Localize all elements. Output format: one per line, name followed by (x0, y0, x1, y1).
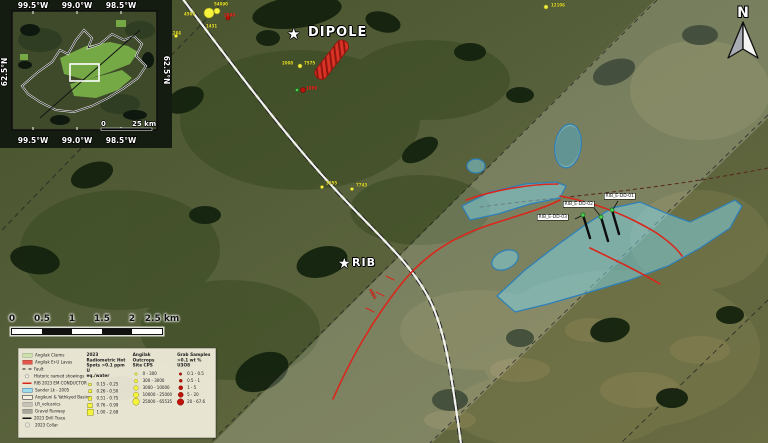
inset-lat-label-right: 62.5°N (162, 56, 171, 85)
legend-class-label: 5 - 20 (187, 393, 199, 398)
drill-hole-label: RIB_E-DD-01 (604, 193, 636, 200)
inset-lon-label: 98.5°W (106, 1, 137, 10)
patchborder-legend-icon (23, 388, 33, 393)
target-star: ★ (287, 27, 300, 42)
sample-value-label: 2008 (282, 61, 293, 66)
sample-value-label: 1889 (306, 86, 317, 91)
scale-tick: 2.5 km (145, 314, 179, 324)
legend-column-header: Angilak OutcropsSite CPS (133, 353, 173, 369)
legend-symbol-row: Angikuni & Yathkyed Basins (23, 395, 83, 400)
patch-legend-icon (23, 360, 33, 365)
circle-class-symbol (179, 372, 182, 375)
legend-symbol-column: Angilak ClaimsAngilak Er-U LavasFault★Hi… (23, 353, 83, 435)
inset-lon-label: 99.5°W (18, 1, 49, 10)
legend-class-label: 0.15 - 0.25 (97, 382, 119, 387)
scale-bar: 00.511.522.5 km (8, 314, 178, 340)
legend-symbol-label: LR_volcanics (35, 402, 61, 407)
north-arrow-left (728, 22, 743, 58)
patch-legend-icon (23, 353, 33, 358)
legend-class-label: 0.5 - 1 (187, 379, 200, 384)
drill-hole-label: RIB_E-DD-02 (563, 201, 595, 208)
sample-value-label: 2849 (224, 13, 235, 18)
legend-class-row: 0.26 - 0.50 (87, 388, 129, 395)
legend-class-row: 0.1 - 0.5 (177, 370, 212, 377)
legend-symbol-row: Angilak Claims (23, 353, 83, 358)
legend-class-row: 25000 - 65535 (133, 398, 173, 405)
legend-class-label: 0.26 - 0.50 (97, 389, 119, 394)
square-class-symbol (88, 390, 92, 394)
legend-symbol-label: Angilak Claims (35, 353, 65, 358)
target-label: RIB (352, 256, 376, 269)
legend-symbol-row: Sander Lk - 2005 (23, 388, 83, 393)
scale-tick: 1.5 (94, 314, 110, 324)
legend-radiometric-column: 2023 Radiometric HotSpots >0.1 ppm Ueq./… (87, 353, 129, 435)
legend-symbol-label: Sander Lk - 2005 (35, 388, 69, 393)
legend-class-label: 0 - 300 (143, 372, 157, 377)
legend-class-row: 3000 - 10000 (133, 384, 173, 391)
legend-class-row: 300 - 3000 (133, 377, 173, 384)
legend-class-label: 20 - 67.6 (187, 400, 205, 405)
legend-symbol-label: 2023 Collar (35, 423, 58, 428)
scale-tick: 1 (69, 314, 75, 324)
legend-symbol-row: ★Historic named showings (23, 374, 83, 379)
inset-locator-map: 99.5°W99.0°W98.5°W 99.5°W99.0°W98.5°W 62… (0, 0, 172, 148)
sample-value-label: 4884 (368, 288, 377, 300)
circle-class-symbol (179, 379, 183, 383)
inset-lon-label: 99.0°W (62, 1, 93, 10)
inset-lon-label: 99.0°W (62, 136, 93, 145)
legend-panel: Angilak ClaimsAngilak Er-U LavasFault★Hi… (18, 348, 216, 438)
legend-symbol-row: Fault (23, 367, 83, 372)
north-arrow: N (722, 2, 764, 64)
scale-tick: 0.5 (34, 314, 50, 324)
legend-class-row: 0.51 - 0.75 (87, 395, 129, 402)
north-label: N (737, 5, 749, 21)
legend-symbol-row: 2023 Drill Trace (23, 416, 83, 421)
inset-lat-label-left: 62.5°N (0, 58, 9, 87)
circle-class-symbol (134, 379, 138, 383)
legend-class-label: 1.00 - 2.68 (97, 410, 119, 415)
legend-class-label: 3000 - 10000 (143, 386, 170, 391)
legend-outcrops-column: Angilak OutcropsSite CPS0 - 300300 - 300… (133, 353, 173, 435)
legend-symbol-label: Angikuni & Yathkyed Basins (35, 395, 90, 400)
sample-value-label: 7743 (356, 183, 367, 188)
target-star: ★ (338, 257, 351, 271)
inset-scale-bar (101, 128, 152, 131)
legend-class-row: 0.5 - 1 (177, 377, 212, 384)
legend-symbol-row: Gravel Runway (23, 409, 83, 414)
legend-class-row: 20 - 67.6 (177, 398, 212, 405)
legend-symbol-row: RIB 2023 EM CONDUCTOR (23, 381, 83, 386)
scale-segment (132, 329, 162, 334)
legend-class-label: 25000 - 65535 (143, 400, 172, 405)
scale-tick: 2 (129, 314, 135, 324)
legend-symbol-row: Angilak Er-U Lavas (23, 360, 83, 365)
legend-symbol-label: Historic named showings (34, 374, 84, 379)
circle-class-symbol (133, 392, 139, 398)
scale-segment (12, 329, 42, 334)
legend-symbol-label: Fault (34, 367, 44, 372)
legend-class-label: 0.76 - 0.99 (97, 403, 119, 408)
legend-symbol-label: Gravel Runway (35, 409, 65, 414)
patch-legend-icon (23, 409, 33, 414)
legend-column-header: Grab Samples>0.1 wt % U3O8 (177, 353, 212, 369)
legend-column-header: 2023 Radiometric HotSpots >0.1 ppm Ueq./… (87, 353, 129, 379)
scale-bar-segments (11, 328, 163, 335)
map-figure: ★DIPOLE★RIBRIB_E-DD-01RIB_E-DD-02RIB_E-D… (0, 0, 768, 443)
circle-class-symbol (178, 392, 184, 398)
sample-value-label: 4505 (184, 12, 195, 17)
legend-symbol-row: LR_volcanics (23, 402, 83, 407)
legend-class-row: 0 - 300 (133, 370, 173, 377)
inset-lon-labels-top: 99.5°W99.0°W98.5°W (18, 1, 137, 10)
square-class-symbol (88, 403, 93, 408)
legend-class-row: 0.15 - 0.25 (87, 381, 129, 388)
line-legend-icon (23, 382, 32, 384)
square-class-symbol (89, 383, 92, 386)
line-legend-icon (23, 417, 32, 419)
dash-legend-icon (23, 369, 32, 370)
sample-value-label: 7575 (304, 61, 315, 66)
square-class-symbol (88, 396, 92, 400)
circle-class-symbol (177, 398, 184, 405)
legend-class-row: 0.76 - 0.99 (87, 402, 129, 409)
inset-scale-zero: 0 (101, 120, 106, 128)
drill-hole-label: RIB_E-DD-03 (537, 214, 569, 221)
scale-segment (102, 329, 132, 334)
scale-segment (42, 329, 72, 334)
legend-grab-column: Grab Samples>0.1 wt % U3O80.1 - 0.50.5 -… (177, 353, 212, 435)
legend-class-label: 0.1 - 0.5 (187, 372, 204, 377)
circle-class-symbol (178, 386, 183, 391)
inset-lon-label: 98.5°W (106, 136, 137, 145)
patch-legend-icon (23, 402, 33, 407)
square-class-symbol (87, 409, 94, 416)
scale-segment (72, 329, 102, 334)
north-arrow-right (743, 22, 758, 58)
legend-class-label: 10000 - 25000 (143, 393, 172, 398)
inset-lon-labels-bottom: 99.5°W99.0°W98.5°W (18, 136, 137, 145)
sample-value-label: 12106 (551, 3, 565, 8)
collar-legend-icon (25, 423, 30, 428)
sample-value-label: 1431 (206, 24, 217, 29)
legend-class-row: 1.00 - 2.68 (87, 409, 129, 416)
legend-class-label: 1 - 5 (187, 386, 196, 391)
star-legend-icon: ★ (23, 374, 32, 379)
sample-value-label: 3055 (326, 181, 337, 186)
circle-class-symbol (133, 398, 140, 406)
target-label: DIPOLE (308, 25, 367, 40)
legend-symbol-label: Angilak Er-U Lavas (35, 360, 72, 365)
legend-symbol-label: RIB 2023 EM CONDUCTOR (34, 381, 87, 386)
legend-class-label: 0.51 - 0.75 (97, 396, 119, 401)
legend-symbol-label: 2023 Drill Trace (34, 416, 65, 421)
legend-class-label: 300 - 3000 (143, 379, 165, 384)
inset-scale-label: 25 km (132, 120, 156, 128)
sample-value-label: 54090 (214, 2, 228, 7)
scale-tick: 0 (9, 314, 15, 324)
scale-bar-ticks: 00.511.522.5 km (8, 314, 178, 327)
inset-lon-label: 99.5°W (18, 136, 49, 145)
legend-class-row: 1 - 5 (177, 384, 212, 391)
patchborder-legend-icon (23, 395, 33, 400)
circle-class-symbol (135, 372, 138, 375)
circle-class-symbol (134, 385, 139, 390)
legend-class-row: 5 - 20 (177, 391, 212, 398)
legend-symbol-row: 2023 Collar (23, 423, 83, 428)
